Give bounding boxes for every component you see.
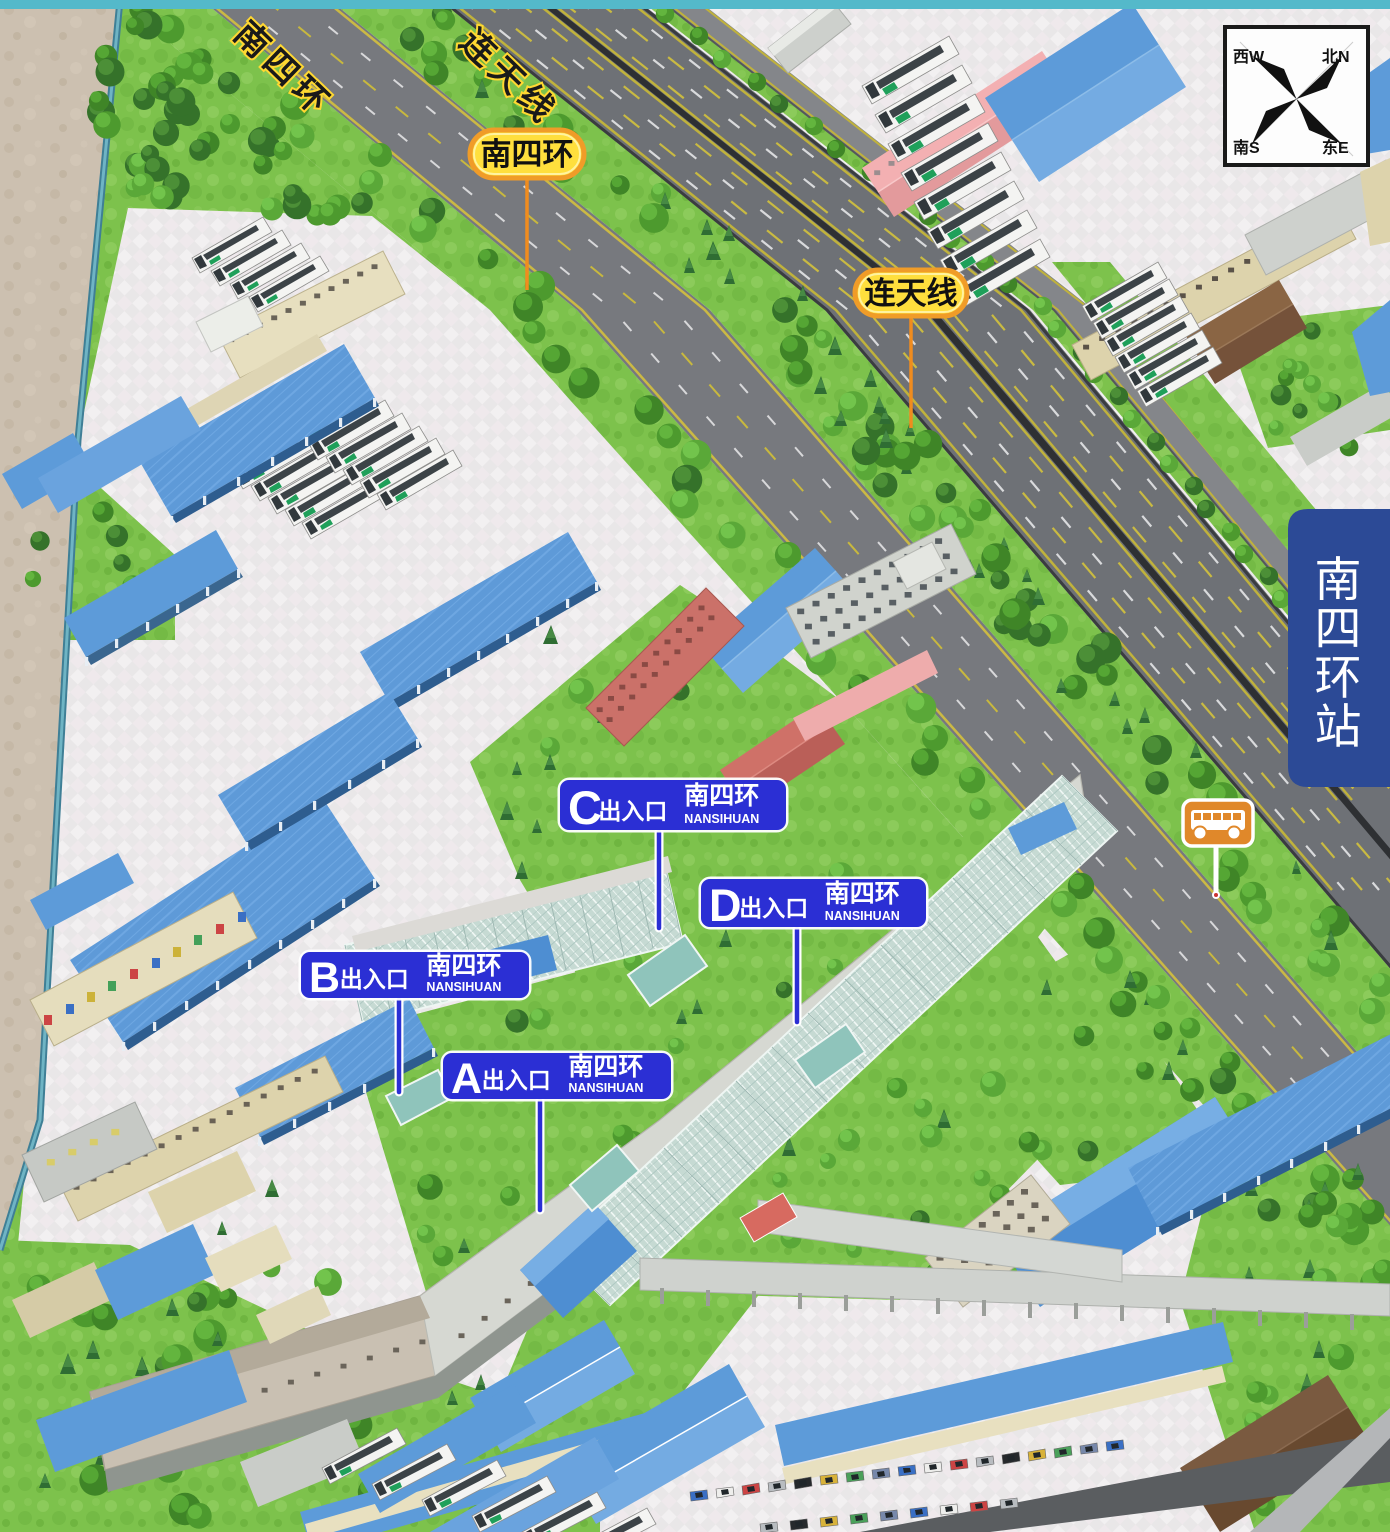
svg-text:NANSIHUAN: NANSIHUAN	[568, 1081, 643, 1095]
svg-text:D: D	[709, 880, 742, 931]
svg-text:东E: 东E	[1322, 138, 1349, 157]
svg-text:出入口: 出入口	[598, 798, 667, 824]
svg-text:南四环: 南四环	[426, 952, 501, 980]
svg-text:出入口: 出入口	[340, 966, 409, 992]
svg-text:NANSIHUAN: NANSIHUAN	[684, 812, 759, 826]
svg-text:北N: 北N	[1322, 48, 1350, 66]
svg-text:连天线: 连天线	[865, 276, 958, 311]
svg-text:NANSIHUAN: NANSIHUAN	[426, 980, 501, 994]
svg-text:南: 南	[1315, 553, 1362, 606]
svg-text:南S: 南S	[1233, 138, 1260, 157]
svg-text:出入口: 出入口	[482, 1067, 551, 1093]
svg-text:南四环: 南四环	[568, 1053, 643, 1081]
svg-text:南四环: 南四环	[481, 137, 574, 172]
svg-text:南四环: 南四环	[825, 880, 900, 908]
svg-text:四: 四	[1315, 602, 1362, 655]
svg-text:站: 站	[1315, 700, 1362, 753]
svg-text:环: 环	[1315, 651, 1362, 704]
svg-text:C: C	[568, 781, 602, 834]
svg-text:南四环: 南四环	[684, 782, 759, 810]
svg-text:出入口: 出入口	[739, 895, 808, 921]
svg-text:B: B	[309, 954, 340, 1002]
svg-text:西W: 西W	[1233, 48, 1265, 66]
svg-text:NANSIHUAN: NANSIHUAN	[825, 909, 900, 923]
svg-text:A: A	[451, 1055, 482, 1103]
